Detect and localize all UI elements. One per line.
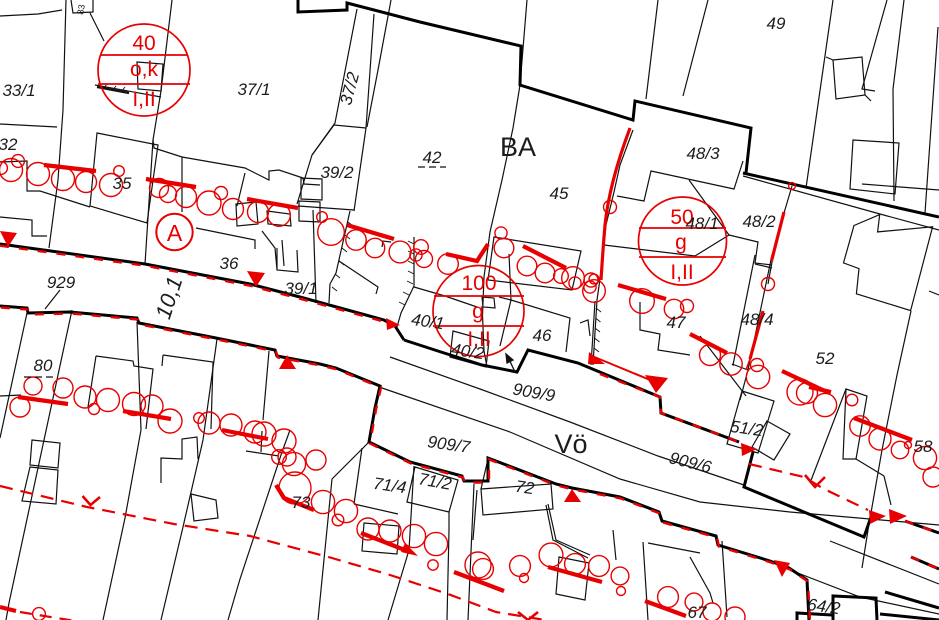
- svg-text:42: 42: [423, 148, 442, 167]
- svg-text:929: 929: [47, 273, 76, 292]
- svg-text:45: 45: [550, 184, 569, 203]
- svg-text:46: 46: [533, 326, 552, 345]
- svg-text:72: 72: [514, 477, 536, 499]
- svg-text:33/1: 33/1: [2, 81, 35, 100]
- svg-text:67: 67: [688, 603, 707, 620]
- svg-text:35: 35: [113, 174, 132, 193]
- svg-text:48/4: 48/4: [740, 310, 773, 329]
- svg-text:I,II: I,II: [132, 88, 155, 111]
- svg-text:g: g: [472, 300, 484, 323]
- svg-text:o,k: o,k: [130, 58, 159, 81]
- svg-text:100: 100: [461, 272, 496, 295]
- svg-text:73: 73: [292, 493, 311, 512]
- svg-text:83: 83: [75, 4, 87, 16]
- svg-text:A: A: [167, 220, 183, 246]
- svg-text:58: 58: [914, 437, 933, 456]
- svg-text:I,II: I,II: [670, 261, 693, 284]
- svg-text:48/2: 48/2: [742, 212, 776, 231]
- svg-text:BA: BA: [500, 132, 536, 162]
- svg-text:36: 36: [220, 254, 239, 273]
- svg-text:48/3: 48/3: [686, 144, 720, 163]
- svg-text:37/1: 37/1: [237, 80, 270, 99]
- svg-text:g: g: [675, 231, 687, 254]
- svg-text:39/2: 39/2: [320, 163, 354, 182]
- svg-text:47: 47: [667, 313, 686, 332]
- svg-text:52: 52: [816, 349, 835, 368]
- svg-text:39/1: 39/1: [284, 279, 317, 298]
- svg-text:80: 80: [34, 356, 53, 375]
- svg-text:48/1: 48/1: [685, 214, 718, 233]
- svg-text:32: 32: [0, 135, 18, 154]
- svg-text:40: 40: [132, 32, 155, 55]
- svg-text:49: 49: [767, 14, 786, 33]
- svg-text:Vö: Vö: [554, 429, 587, 459]
